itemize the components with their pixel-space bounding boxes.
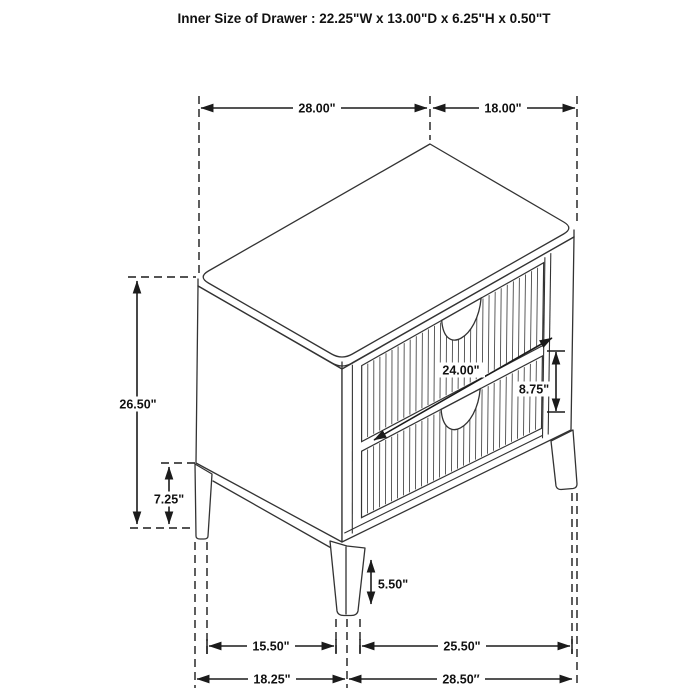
svg-text:28.50″: 28.50″	[442, 673, 479, 687]
diagram-title: Inner Size of Drawer : 22.25"W x 13.00"D…	[177, 11, 551, 26]
dim-top-depth-label: 18.00"	[479, 101, 527, 116]
nightstand-drawing	[195, 144, 577, 616]
svg-text:8.75": 8.75"	[519, 383, 549, 397]
svg-text:24.00": 24.00"	[442, 364, 479, 378]
dim-drawer-height-label: 8.75"	[513, 382, 555, 397]
svg-text:25.50": 25.50"	[443, 640, 480, 654]
dim-base-outer-width-label: 18.25"	[248, 672, 296, 687]
dim-drawer-width-label: 24.00"	[437, 363, 485, 378]
dim-base-inner-width-label: 15.50"	[247, 639, 295, 654]
dim-leg-section-label: 7.25"	[148, 492, 190, 507]
svg-text:7.25": 7.25"	[154, 493, 184, 507]
right-leg	[551, 430, 577, 490]
svg-text:15.50": 15.50"	[252, 640, 289, 654]
dim-overall-height-label: 26.50"	[114, 397, 162, 412]
dim-top-width-label: 28.00"	[293, 101, 341, 116]
dim-front-leg-label: 5.50"	[372, 577, 414, 592]
svg-text:28.00": 28.00"	[298, 102, 335, 116]
dim-base-outer-depth-label: 28.50″	[437, 672, 485, 687]
svg-text:18.00": 18.00"	[484, 102, 521, 116]
nightstand-dimension-diagram: Inner Size of Drawer : 22.25"W x 13.00"D…	[0, 0, 700, 700]
diagram-canvas: Inner Size of Drawer : 22.25"W x 13.00"D…	[0, 0, 700, 700]
front-leg	[330, 541, 365, 616]
svg-text:5.50": 5.50"	[378, 578, 408, 592]
dim-base-inner-depth-label: 25.50"	[438, 639, 486, 654]
rear-left-leg	[195, 464, 212, 539]
svg-text:18.25": 18.25"	[253, 673, 290, 687]
svg-text:26.50": 26.50"	[119, 398, 156, 412]
